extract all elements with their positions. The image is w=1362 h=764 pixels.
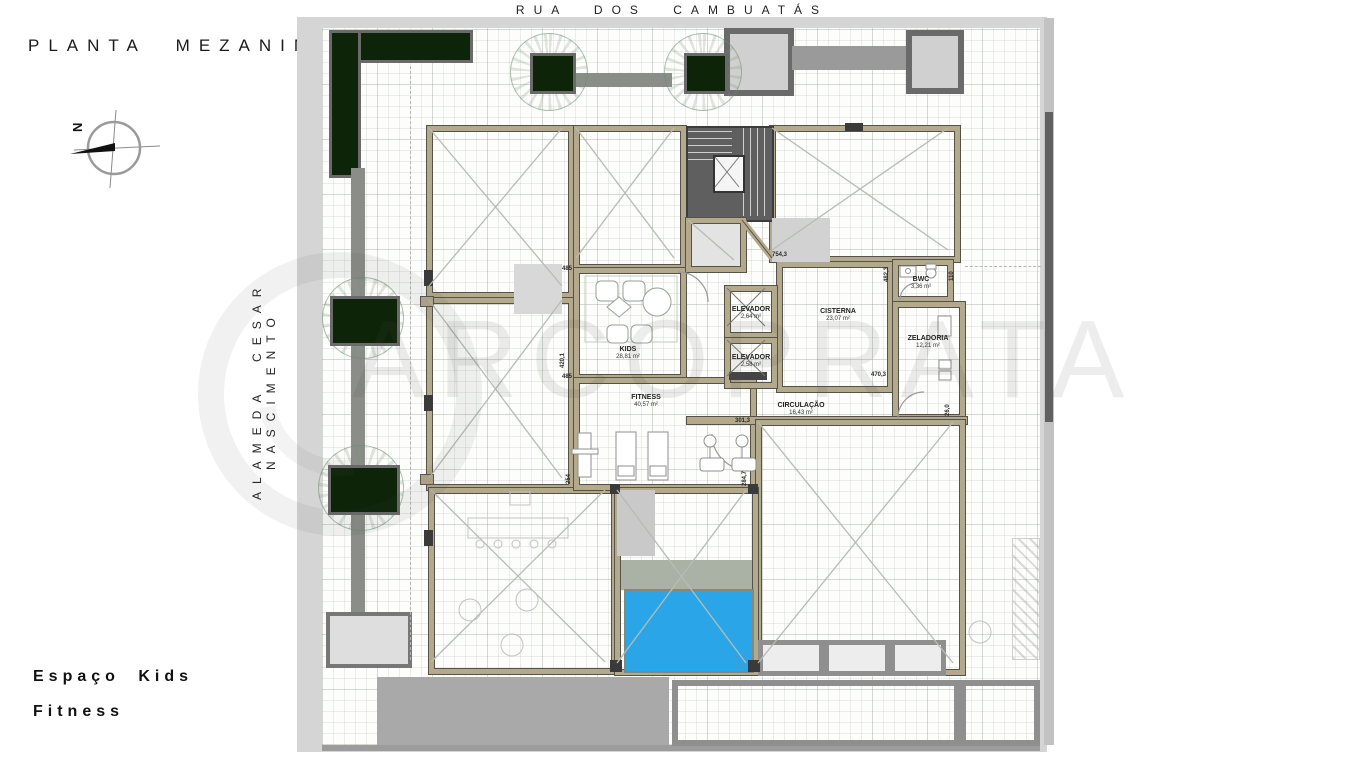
room-cisterna: [777, 262, 893, 392]
wall-post: [748, 484, 758, 494]
lower-room: [672, 680, 960, 746]
street-label-left: ALAMEDA CESAR NASCIMENTO: [250, 190, 278, 590]
floor-plan-sheet: PLANTA MEZANINO RUA DOS CAMBUATÁS ALAMED…: [0, 0, 1362, 764]
room-void-top-mid: [574, 126, 686, 270]
street-label-top: RUA DOS CAMBUATÁS: [297, 3, 1047, 17]
room-bwc: [893, 260, 953, 302]
tree-planter: [684, 53, 728, 94]
roof-box-top-2: [906, 30, 964, 94]
window-frame: [890, 640, 946, 676]
wall-post: [610, 484, 620, 494]
tree-planter: [328, 465, 400, 515]
room-void-bottom-right: [756, 420, 965, 675]
property-dashed-line: [410, 66, 411, 660]
wall-post: [424, 270, 433, 286]
room-zeladoria: [893, 302, 965, 420]
tree-planter: [530, 53, 576, 94]
pool-deck: [621, 560, 752, 590]
slab-box: [772, 218, 830, 262]
page-title: PLANTA MEZANINO: [28, 36, 337, 56]
stair-elevator-shaft: [713, 155, 745, 193]
wall-tee: [420, 474, 434, 485]
wall-post: [748, 660, 760, 672]
north-compass: N: [58, 106, 168, 192]
wall-post: [610, 660, 622, 672]
walkway-left: [351, 168, 365, 614]
lower-room: [960, 680, 1040, 746]
compass-icon: N: [58, 106, 168, 192]
roof-bar-top: [792, 46, 906, 70]
terrace-lower: [377, 677, 669, 745]
room-fitness: [574, 378, 756, 490]
planter-left-vertical: [329, 30, 361, 178]
window-frame: [824, 640, 890, 676]
wall-tee: [420, 296, 434, 307]
planter-box-bottom-left: [326, 612, 412, 668]
room-elevator-1: [725, 286, 777, 338]
elevator-door: [729, 372, 767, 380]
slab-box: [514, 264, 562, 314]
right-edge-wall: [1045, 112, 1053, 422]
tree-planter: [330, 296, 400, 346]
legend-fitness: Fitness: [33, 703, 124, 721]
pool-water: [624, 589, 754, 673]
setback-dashed-line: [965, 266, 1041, 267]
slab-box: [617, 490, 655, 556]
window-frame: [758, 640, 824, 676]
room-kids: [574, 268, 686, 380]
room-gourmet-void: [429, 488, 617, 674]
legend-espaco-kids: Espaço Kids: [33, 668, 193, 686]
room-elevator-2: [725, 338, 777, 388]
svg-text:N: N: [70, 123, 85, 132]
hatched-strip: [1012, 538, 1040, 660]
wall-post: [845, 123, 863, 131]
wall-post: [424, 530, 433, 546]
room-void-mid-left: [427, 298, 574, 490]
wall-post: [424, 395, 433, 411]
stair-landing: [686, 218, 746, 272]
